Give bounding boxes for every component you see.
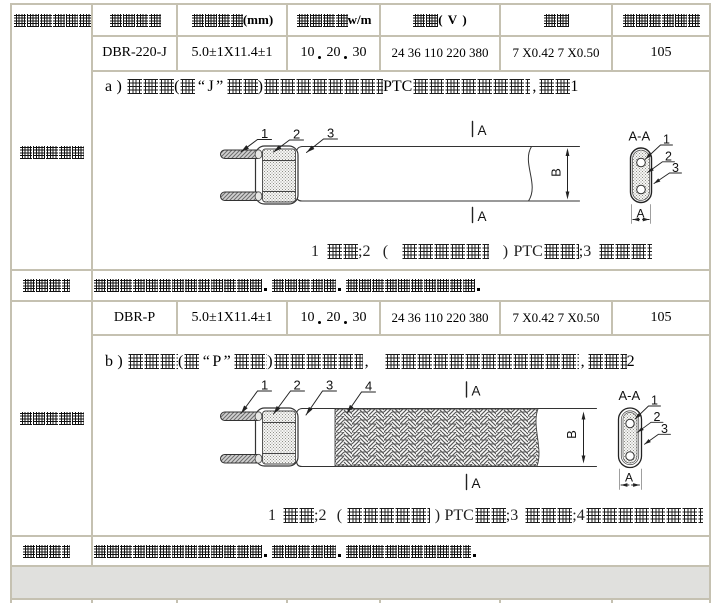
svg-text:3: 3 <box>326 378 333 393</box>
svg-text:3: 3 <box>327 126 334 141</box>
svg-text:2: 2 <box>293 127 300 142</box>
svg-text:4: 4 <box>365 379 372 394</box>
svg-text:A: A <box>637 207 645 221</box>
svg-text:A: A <box>478 209 487 224</box>
svg-text:1: 1 <box>261 378 268 393</box>
svg-text:A: A <box>478 123 487 138</box>
svg-text:2: 2 <box>294 378 301 393</box>
svg-text:1: 1 <box>261 126 268 141</box>
svg-text:A-A: A-A <box>619 388 641 403</box>
svg-text:B: B <box>564 430 579 439</box>
svg-text:A: A <box>625 471 633 485</box>
svg-text:A: A <box>472 384 481 399</box>
svg-text:1: 1 <box>663 133 670 147</box>
svg-text:1: 1 <box>651 394 658 408</box>
svg-text:B: B <box>549 168 564 177</box>
svg-text:A: A <box>472 476 481 491</box>
svg-text:A-A: A-A <box>629 129 651 144</box>
